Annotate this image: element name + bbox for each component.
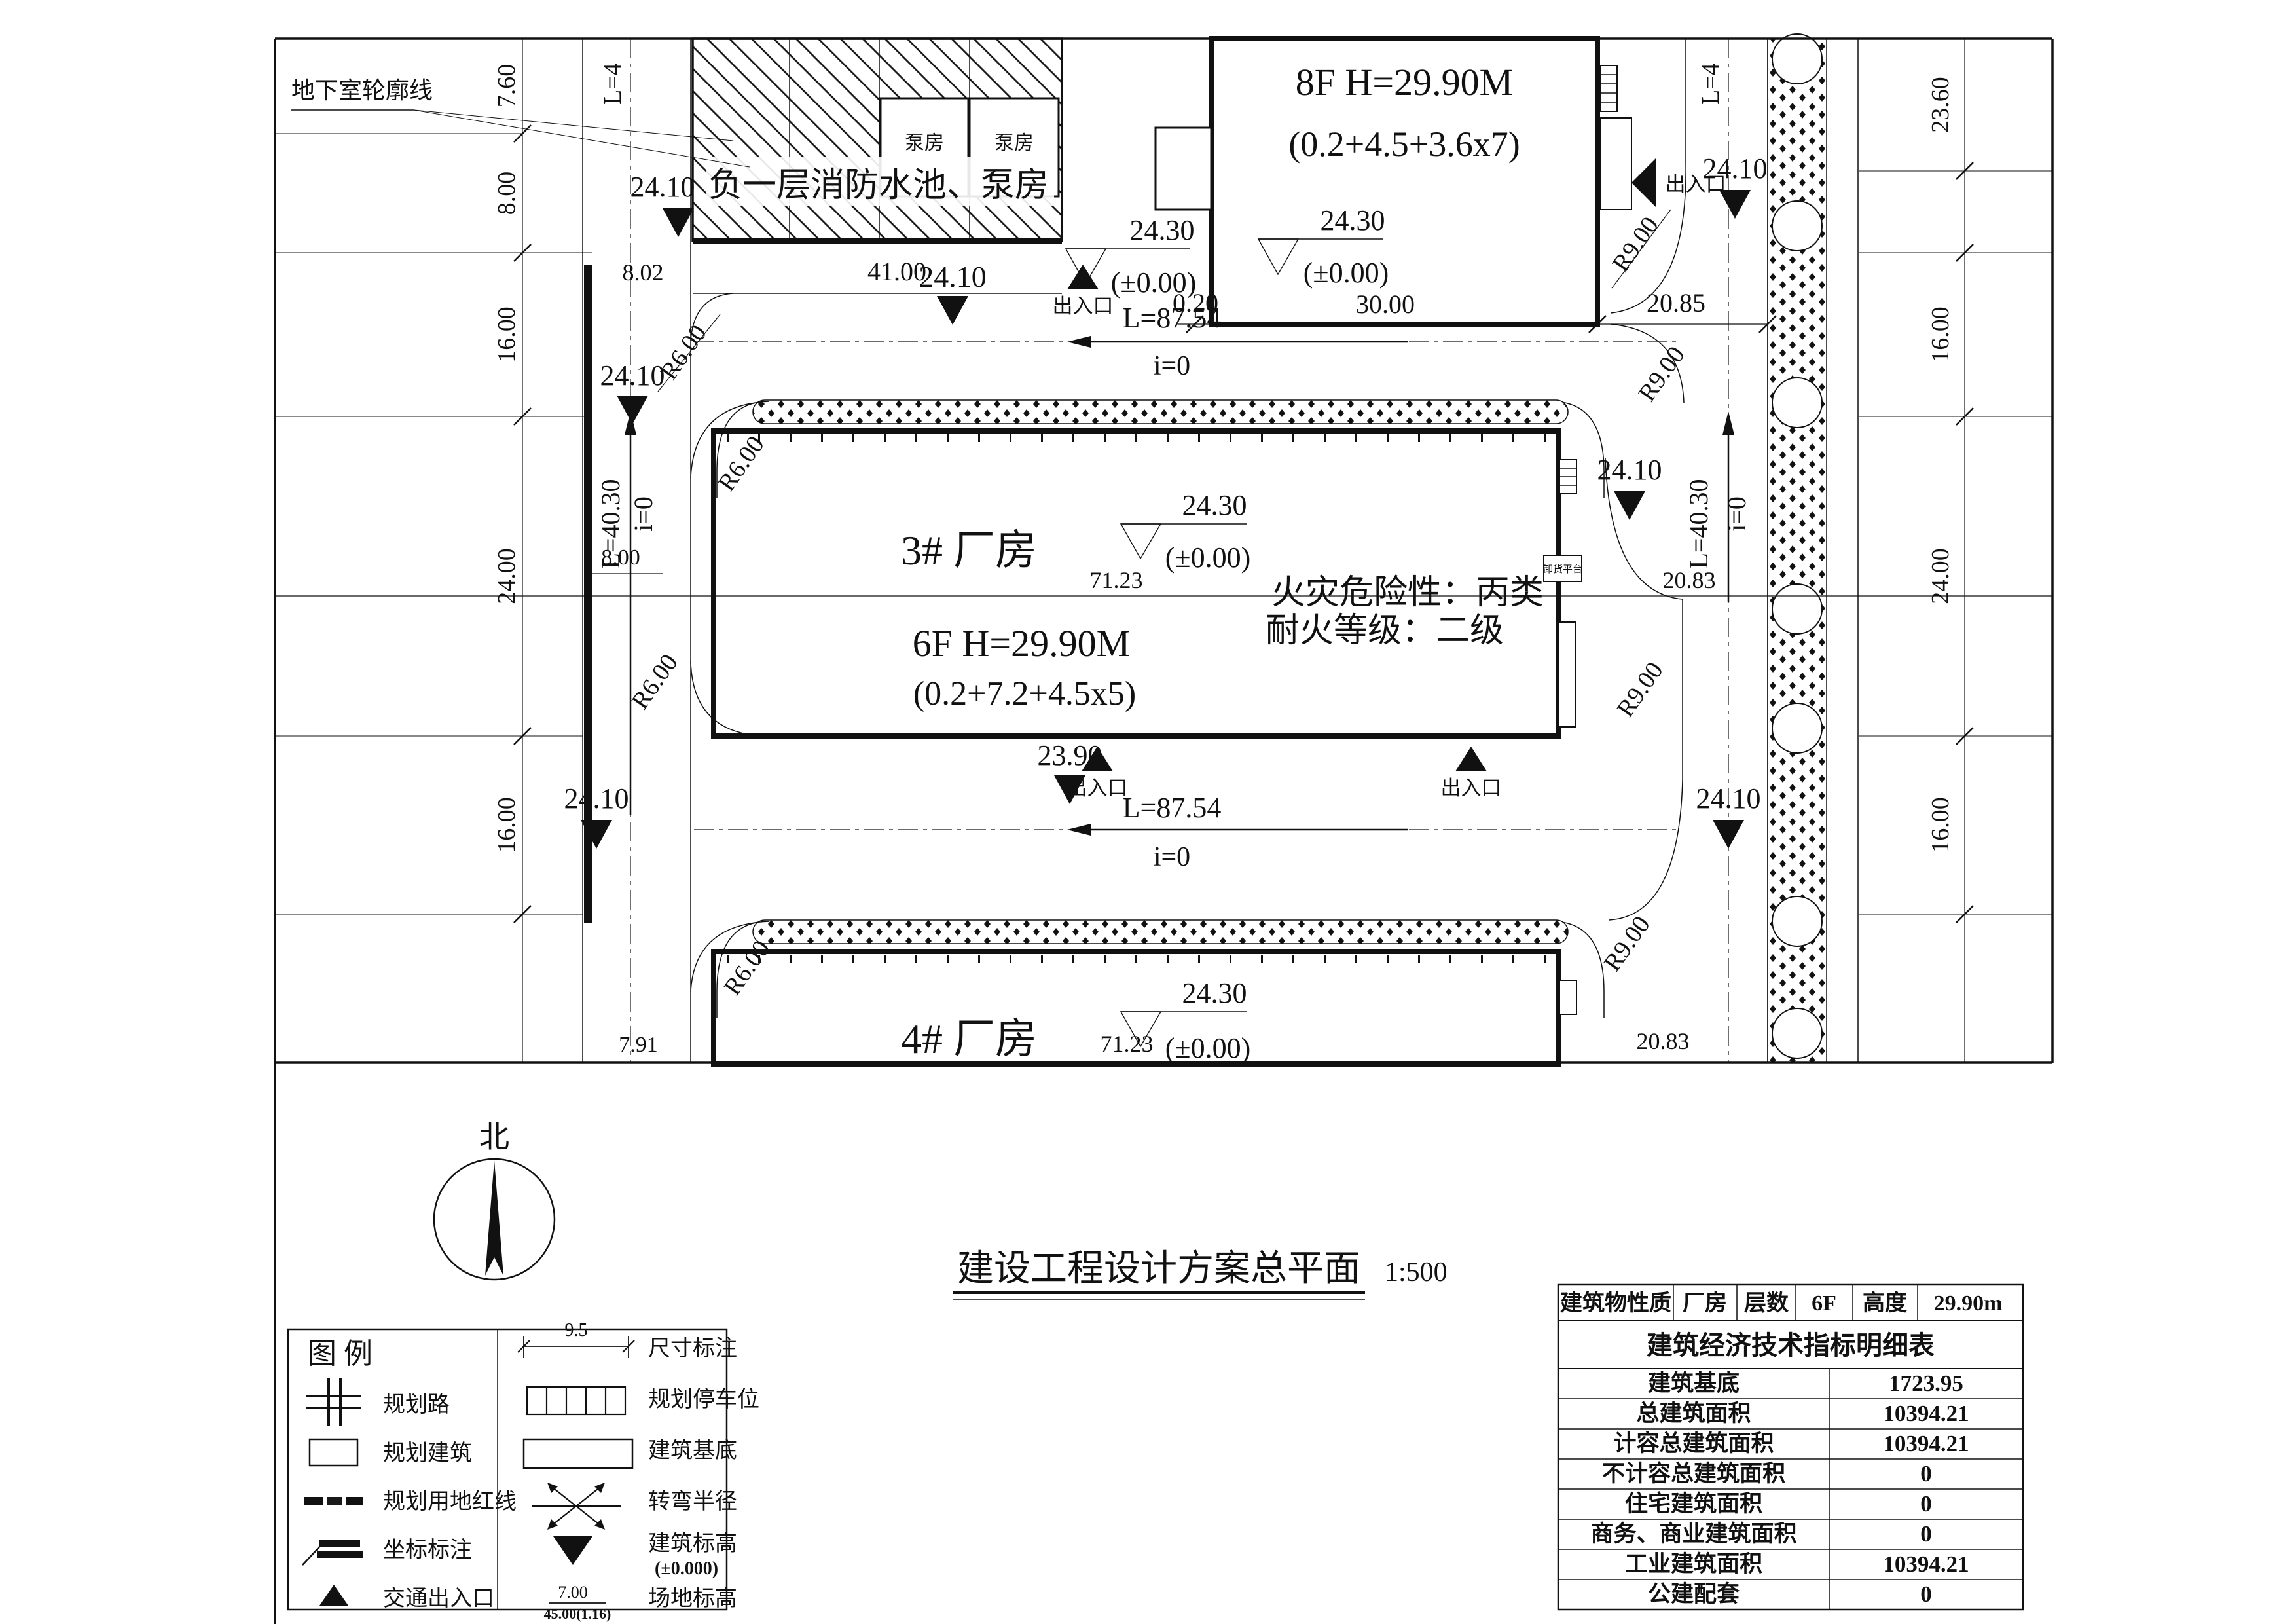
dim-right-2: 16.00 (1927, 306, 1954, 363)
dim-right-3: 24.00 (1927, 548, 1954, 604)
unloading-platform-label: 卸货平台 (1543, 564, 1582, 575)
pump-room-2-label: 泵房 (994, 132, 1034, 154)
entrance-label-4: 出入口 (1441, 777, 1502, 800)
elev-2430-2: 24.30 (1321, 204, 1385, 236)
drawing-title: 建设工程设计方案总平面 1:500 (953, 1249, 1448, 1299)
table-row-label: 住宅建筑面积 (1625, 1490, 1762, 1517)
table-row-value: 10394.21 (1883, 1431, 1969, 1456)
table-row-value: 0 (1920, 1521, 1932, 1547)
building-3-floors: (0.2+7.2+4.5x5) (913, 675, 1136, 712)
table-header-5: 29.90m (1934, 1291, 2003, 1316)
r9-label-3: R9.00 (1612, 657, 1669, 722)
table-row-value: 1723.95 (1889, 1371, 1963, 1396)
indicator-table: 建筑物性质 厂房 层数 6F 高度 29.90m 建筑经济技术指标明细表 建筑基… (1558, 1285, 2023, 1610)
legend-label-building: 规划建筑 (383, 1441, 472, 1466)
basement-outline-callout: 地下室轮廓线 (291, 77, 750, 167)
site-plan-sheet: 泵房 泵房 负一层消防水池、泵房 8F H=29.90M (0.2+4.5+3.… (0, 0, 2296, 1624)
road-left-slope: i=0 (629, 496, 658, 532)
basement-label: 负一层消防水池、泵房 (708, 167, 1049, 204)
elev-2430-1: 24.30 (1130, 214, 1195, 246)
stair-icon (1600, 65, 1617, 111)
legend-label-turning-radius: 转弯半径 (648, 1489, 737, 1514)
table-header-3: 6F (1812, 1291, 1836, 1316)
dim-left-1: 7.60 (493, 64, 520, 108)
elev-2410-c: 24.10 (600, 360, 665, 392)
elev-2430-4b: (±0.00) (1165, 1032, 1250, 1064)
landscape-strip (1768, 34, 1858, 1063)
dim-2085: 20.85 (1647, 288, 1705, 318)
tree-icon (1772, 896, 1822, 946)
r6-label-1: R6.00 (655, 320, 712, 384)
tree-icon (1772, 378, 1822, 428)
legend-label-entrance: 交通出入口 (383, 1586, 494, 1611)
entrance-icon (1631, 158, 1656, 208)
elev-2410-a: 24.10 (630, 171, 695, 203)
elev-2410-e: 24.10 (1597, 454, 1662, 486)
table-row-label: 不计容总建筑面积 (1602, 1461, 1785, 1486)
legend-title: 图 例 (308, 1338, 373, 1370)
elev-2430-4: 24.30 (1182, 977, 1247, 1009)
table-row-label: 工业建筑面积 (1625, 1551, 1762, 1577)
dim-4100: 41.00 (867, 257, 926, 286)
legend-label-redline: 规划用地红线 (383, 1489, 517, 1514)
fire-hazard-note: 火灾危险性：丙类 (1271, 574, 1544, 612)
legend-dim-sample: 9.5 (565, 1320, 588, 1340)
pump-room-1-label: 泵房 (905, 132, 944, 154)
legend-building-elev-note: (±0.000) (655, 1559, 718, 1579)
dim-left-5: 16.00 (493, 797, 520, 853)
tree-icon (1772, 584, 1822, 634)
tree-icon (1772, 34, 1822, 84)
legend-label-parking: 规划停车位 (648, 1387, 759, 1412)
elev-2430-2b: (±0.00) (1303, 257, 1389, 289)
table-row-label: 总建筑面积 (1636, 1401, 1751, 1426)
r6-label-3: R6.00 (627, 649, 683, 714)
stair-icon (1559, 980, 1576, 1014)
elev-2410-b: 24.10 (919, 260, 987, 293)
table-row-value: 0 (1920, 1461, 1932, 1486)
dim-left-4: 24.00 (493, 548, 520, 604)
table-row-label: 商务、商业建筑面积 (1590, 1521, 1796, 1547)
table-row-label: 建筑基底 (1648, 1371, 1740, 1396)
dim-right-1: 23.60 (1927, 77, 1954, 133)
dim-left-2: 8.00 (493, 172, 520, 215)
legend-site-elev-a: 7.00 (558, 1583, 588, 1602)
entrance-label-2: 出入口 (1053, 295, 1114, 318)
entrance-icon (1455, 747, 1487, 771)
r9-label-2: R9.00 (1633, 341, 1690, 406)
r9-label-1: R9.00 (1607, 212, 1664, 276)
legend-label-coordinate: 坐标标注 (383, 1538, 472, 1562)
legend-label-footprint: 建筑基底 (648, 1438, 737, 1463)
tree-icon (1772, 1008, 1822, 1058)
building-4-name: 4# 厂房 (901, 1016, 1037, 1062)
entrance-icon (1067, 265, 1099, 289)
table-row-label: 公建配套 (1648, 1581, 1740, 1607)
road2-length: L=87.54 (1123, 792, 1222, 824)
site-plan-drawing: 泵房 泵房 负一层消防水池、泵房 8F H=29.90M (0.2+4.5+3.… (0, 0, 2296, 1624)
table-header-0: 建筑物性质 (1560, 1291, 1671, 1316)
basement-pump-block: 泵房 泵房 负一层消防水池、泵房 (693, 39, 1062, 241)
dim-3000: 30.00 (1356, 289, 1415, 319)
table-row-value: 0 (1920, 1491, 1932, 1517)
table-row-value: 10394.21 (1883, 1551, 1969, 1577)
dim-802: 8.02 (623, 259, 664, 286)
dim-7123-a: 71.23 (1090, 567, 1143, 593)
legend-site-elev-b: 45.00(1.16) (544, 1606, 611, 1622)
table-row-value: 0 (1920, 1581, 1932, 1607)
basement-outline-label: 地下室轮廓线 (291, 77, 433, 103)
road-right-slope: i=0 (1722, 496, 1751, 532)
elev-2410-g: 24.10 (1696, 783, 1761, 815)
legend-symbol-redline (304, 1497, 363, 1505)
north-compass: 北 (434, 1120, 555, 1280)
north-label: 北 (479, 1120, 509, 1154)
table-title: 建筑经济技术指标明细表 (1647, 1331, 1935, 1360)
fire-rating-note: 耐火等级：二级 (1266, 612, 1504, 650)
left-dimension-column: 7.60 8.00 16.00 24.00 16.00 (275, 39, 592, 1063)
building-8f-label: 8F H=29.90M (1296, 61, 1513, 103)
tree-icon (1772, 201, 1822, 251)
entrance-label-3: 出入口 (1067, 777, 1128, 800)
building-3-height: 6F H=29.90M (913, 622, 1130, 665)
elev-2430-3b: (±0.00) (1165, 542, 1250, 574)
north-needle-icon (485, 1160, 503, 1276)
legend: 图 例 规划路 规划建筑 规划用地红线 坐标标注 交通出入口 (288, 1320, 759, 1622)
tree-icon (1772, 703, 1822, 753)
legend-label-dimension: 尺寸标注 (648, 1336, 737, 1361)
title-scale: 1:500 (1385, 1257, 1448, 1287)
title-text: 建设工程设计方案总平面 (957, 1249, 1360, 1289)
right-dimension-column: 23.60 16.00 24.00 16.00 (1859, 39, 2052, 1063)
elev-2430-3: 24.30 (1182, 489, 1247, 521)
dim-800-road: 8.00 (601, 545, 640, 570)
dim-2083-b: 20.83 (1637, 1028, 1690, 1054)
dim-7123-b: 71.23 (1101, 1031, 1154, 1057)
building-8f-floors: (0.2+4.5+3.6x7) (1288, 124, 1520, 164)
dim-791: 7.91 (619, 1033, 658, 1057)
legend-label-site-elev: 场地标高 (648, 1586, 737, 1611)
road-left-length-cut: L=4 (599, 63, 627, 105)
table-header-2: 层数 (1744, 1291, 1789, 1316)
road1-slope: i=0 (1154, 351, 1190, 381)
table-row-value: 10394.21 (1883, 1401, 1969, 1426)
road2-slope: i=0 (1154, 842, 1190, 872)
dim-right-4: 16.00 (1927, 797, 1954, 853)
dim-2083-a: 20.83 (1663, 567, 1716, 593)
building-8f: 8F H=29.90M (0.2+4.5+3.6x7) (1156, 39, 1631, 324)
table-row-label: 计容总建筑面积 (1613, 1431, 1774, 1456)
table-header-4: 高度 (1863, 1291, 1907, 1316)
building-3-name: 3# 厂房 (901, 527, 1037, 574)
legend-label-building-elev: 建筑标高 (648, 1531, 737, 1556)
road-right-length: L=40.30 (1684, 479, 1713, 569)
entrance-label-1: 出入口 (1666, 173, 1726, 196)
legend-label-road: 规划路 (383, 1392, 450, 1417)
r9-label-4: R9.00 (1599, 911, 1656, 976)
elev-2410-f: 24.10 (564, 783, 629, 815)
table-header-1: 厂房 (1683, 1291, 1727, 1316)
dim-020: 0.20 (1173, 288, 1218, 318)
fire-notes: 火灾危险性：丙类 耐火等级：二级 (1266, 574, 1544, 650)
road-right-length-cut: L=4 (1697, 63, 1724, 105)
dim-left-3: 16.00 (493, 306, 520, 363)
